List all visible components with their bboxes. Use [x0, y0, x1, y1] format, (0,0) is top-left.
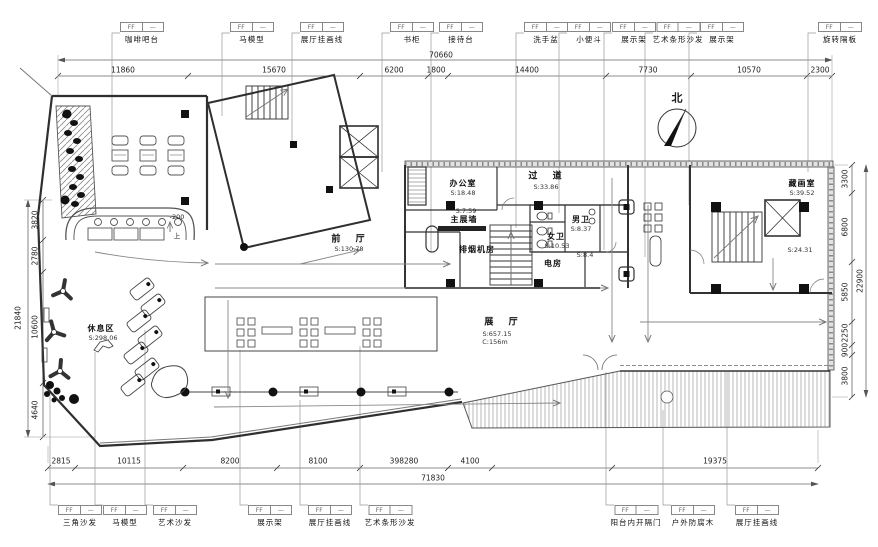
callout-tag: FF—: [153, 505, 197, 515]
plants-sw: [44, 381, 65, 403]
callout-bottom-picture-rail-1: FF— 展厅挂画线: [308, 505, 352, 528]
room-office-name: 办公室: [450, 180, 477, 188]
room-archive-name: 藏画室: [789, 180, 816, 188]
callout-tag: FF—: [612, 22, 656, 32]
stair-top: [246, 86, 288, 119]
level-up-label: 上: [174, 233, 181, 240]
triangle-sofas: [42, 279, 73, 378]
dim-top-4: 1800: [426, 66, 445, 74]
room-archive-lower-area: S:24.31: [788, 247, 813, 254]
callout-top-coffee-bar: FF— 咖啡吧台: [120, 22, 164, 45]
callout-bottom-triangle-sofa: FF— 三角沙发: [58, 505, 102, 528]
callout-tag: FF—: [368, 505, 412, 515]
skewed-gallery-block: [208, 75, 378, 251]
callout-bottom-outdoor-wood: FF— 户外防腐木: [671, 505, 715, 528]
callout-top-art-bench: FF— 艺术条形沙发: [653, 22, 704, 45]
callout-tag: FF—: [700, 22, 744, 32]
callout-top-rotating-panel: FF— 旋转隔板: [818, 22, 862, 45]
level-mark: -200: [170, 214, 185, 221]
dim-right-5: 900: [841, 343, 849, 357]
dim-left-1: 3820: [31, 210, 39, 229]
floor-plan-page: FF— 咖啡吧台 FF— 马模型 FF— 展厅挂画线 FF— 书柜 FF— 接待…: [0, 0, 878, 547]
callout-tag: FF—: [300, 22, 344, 32]
callout-tag: FF—: [308, 505, 352, 515]
stair-right: [712, 212, 762, 262]
callout-top-bookcase: FF— 书柜: [390, 22, 434, 45]
room-main-wall-name: 主展墙: [451, 216, 478, 224]
callout-tag: FF—: [390, 22, 434, 32]
callout-top-horse-model: FF— 马模型: [230, 22, 274, 45]
dim-top-7: 10570: [737, 66, 761, 74]
main-display-wall: [438, 226, 486, 231]
bar-stools: [95, 219, 182, 226]
callout-top-display-rack-2: FF— 展示架: [700, 22, 744, 45]
callout-tag: FF—: [567, 22, 611, 32]
room-aux-area: S:8.4: [577, 252, 594, 259]
bench: [426, 226, 438, 252]
callout-tag: FF—: [818, 22, 862, 32]
dim-left-4: 4640: [31, 400, 39, 419]
callout-tag: FF—: [230, 22, 274, 32]
dim-left-3: 10600: [31, 315, 39, 339]
dim-right-4: 2250: [841, 323, 849, 342]
callout-top-washbasin: FF— 洗手盆: [524, 22, 568, 45]
dim-left-2: 2780: [31, 246, 39, 265]
dim-bottom-1: 2815: [51, 457, 70, 465]
callout-bottom-art-sofa: FF— 艺术沙发: [153, 505, 197, 528]
dim-left-total: 21840: [14, 306, 22, 330]
dim-top-3: 6200: [384, 66, 403, 74]
dim-right-1: 3300: [841, 169, 849, 188]
room-rest-name: 休息区: [88, 325, 115, 333]
dim-bottom-total: 71830: [421, 474, 445, 482]
room-main-wall-area: S:7.59: [456, 208, 477, 215]
dim-bottom-7: 19375: [703, 457, 727, 465]
dim-bottom-4: 8100: [308, 457, 327, 465]
room-womens-area: S:10.53: [545, 243, 570, 250]
callout-tag: FF—: [735, 505, 779, 515]
callout-top-reception: FF— 接待台: [439, 22, 483, 45]
exhibition-hall: [61, 110, 459, 405]
room-hall-area: S:657.15: [482, 331, 511, 338]
dim-right-3: 5850: [841, 282, 849, 301]
dim-bottom-2: 10115: [117, 457, 141, 465]
display-stands-right: [644, 203, 662, 266]
north-label: 北: [672, 93, 683, 104]
callout-bottom-display-rack: FF— 展示架: [248, 505, 292, 528]
dim-right-6: 3800: [841, 366, 849, 385]
dim-top-total: 70660: [429, 51, 453, 59]
dim-top-1: 11860: [111, 66, 135, 74]
callout-leaders: [50, 33, 816, 505]
room-womens-name: 女卫: [547, 233, 565, 241]
callout-bottom-art-bench: FF— 艺术条形沙发: [365, 505, 416, 528]
stair-central: [490, 225, 532, 285]
dim-bottom-5: 398280: [390, 457, 419, 465]
recliner-sofas: [120, 277, 166, 397]
room-mens-area: S:8.37: [571, 226, 592, 233]
callout-tag: FF—: [103, 505, 147, 515]
callout-tag: FF—: [524, 22, 568, 32]
room-hall-circulation: C:156m: [482, 339, 507, 346]
callout-tag: FF—: [439, 22, 483, 32]
callout-top-picture-rail: FF— 展厅挂画线: [300, 22, 344, 45]
callout-tag: FF—: [614, 505, 658, 515]
dim-top-6: 7730: [638, 66, 657, 74]
room-mens-name: 男卫: [572, 216, 590, 224]
room-office-area: S:18.48: [451, 190, 476, 197]
dim-top-5: 14400: [515, 66, 539, 74]
room-electrical-name: 电房: [544, 260, 562, 268]
dim-right-2: 6800: [841, 217, 849, 236]
dim-bottom-6: 4100: [460, 457, 479, 465]
outdoor-deck: [463, 355, 830, 428]
callout-bottom-horse-model: FF— 马模型: [103, 505, 147, 528]
room-hall-name: 展 厅: [484, 319, 523, 328]
dim-top-8: 2300: [810, 66, 829, 74]
central-display-island: [205, 297, 437, 351]
callout-tag: FF—: [656, 22, 700, 32]
dim-bottom-3: 8200: [220, 457, 239, 465]
room-lobby-area: S:130.78: [334, 246, 363, 253]
room-corridor-name: 过 道: [528, 173, 567, 182]
north-arrow: [658, 109, 696, 147]
horse-sculpture: [94, 340, 113, 352]
callout-tag: FF—: [248, 505, 292, 515]
callout-tag: FF—: [58, 505, 102, 515]
callout-tag: FF—: [120, 22, 164, 32]
column-wraps: [619, 200, 634, 281]
callout-top-urinal: FF— 小便斗: [567, 22, 611, 45]
room-archive-area: S:39.52: [790, 190, 815, 197]
room-corridor-area: S:33.86: [534, 184, 559, 191]
cafe-tables: [112, 136, 184, 175]
callout-top-display-rack-1: FF— 展示架: [612, 22, 656, 45]
callout-bottom-picture-rail-2: FF— 展厅挂画线: [735, 505, 779, 528]
room-smoke-name: 排烟机房: [459, 246, 495, 254]
dim-top-2: 15670: [262, 66, 286, 74]
elevator-right: [765, 200, 800, 236]
room-rest-area: S:298.06: [88, 335, 117, 342]
callout-tag: FF—: [671, 505, 715, 515]
balcony-door-swings: [583, 355, 617, 370]
callout-bottom-balcony-door: FF— 阳台内开隔门: [611, 505, 662, 528]
bookcase: [408, 167, 426, 205]
room-lobby-name: 前 厅: [331, 236, 370, 245]
dim-right-total: 22900: [856, 269, 864, 293]
